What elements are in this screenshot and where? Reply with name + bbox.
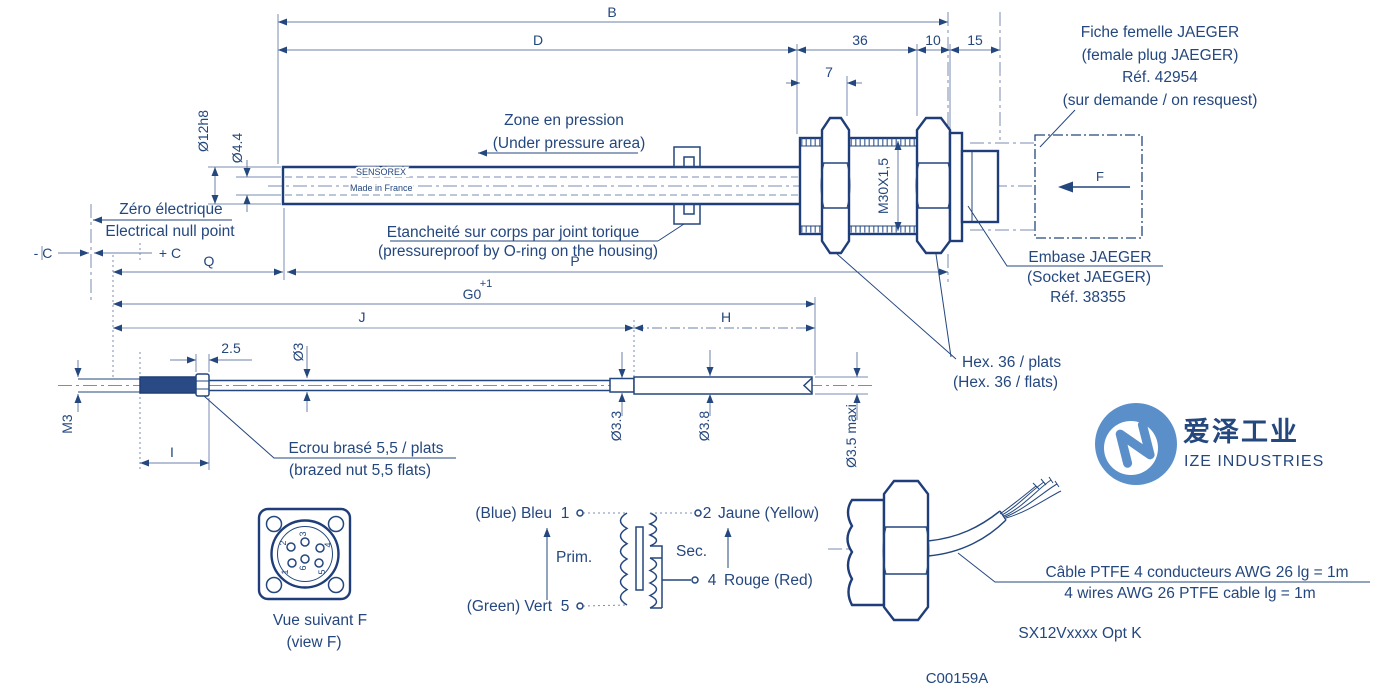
wiring-pin1: 1 — [561, 505, 570, 522]
note-hex-fr: Hex. 36 / plats — [962, 354, 1061, 371]
sensor-drawing: 2 3 4 1 6 5 — [0, 0, 1379, 689]
wiring-pin2: 2 — [703, 505, 712, 522]
socket-stub — [962, 151, 998, 222]
wiring-red-label: Rouge (Red) — [724, 572, 813, 589]
dim-10: 10 — [925, 32, 941, 48]
rod-step-3-3 — [610, 379, 634, 393]
terminal-4 — [692, 577, 698, 583]
wiring-pin4: 4 — [708, 572, 717, 589]
note-socket-line3: Réf. 38355 — [1050, 289, 1126, 306]
note-hex-en: (Hex. 36 / flats) — [953, 374, 1058, 391]
made-in-text: Made in France — [350, 183, 413, 193]
dim-j: J — [359, 309, 366, 325]
note-zero-en: Electrical null point — [105, 223, 235, 240]
primary-coil — [621, 513, 628, 605]
hex-nut-1 — [821, 118, 850, 253]
dim-dia4-4: Ø4.4 — [229, 133, 245, 164]
ize-industries-logo: 爱泽工业 IZE INDUSTRIES — [1095, 403, 1324, 485]
pin-4-label: 4 — [323, 542, 333, 547]
cable-note-fr: Câble PTFE 4 conducteurs AWG 26 lg = 1m — [1045, 564, 1348, 581]
dim-h: H — [721, 309, 731, 325]
dim-b: B — [607, 4, 616, 20]
note-zero-fr: Zéro électrique — [119, 201, 222, 218]
dim-dia3: Ø3 — [290, 342, 306, 361]
terminal-1 — [577, 510, 583, 516]
pin-6-label: 6 — [298, 565, 308, 570]
dim-dia3-3: Ø3.3 — [608, 411, 624, 442]
dim-36: 36 — [852, 32, 868, 48]
brazed-nut — [196, 374, 209, 396]
note-socket-line1: Embase JAEGER — [1028, 249, 1151, 266]
connector-face-view: 2 3 4 1 6 5 — [259, 509, 350, 599]
logo-en-text: IZE INDUSTRIES — [1184, 453, 1324, 470]
pin-1-label: 1 — [280, 569, 290, 574]
dim-minus-c: - C — [34, 245, 53, 261]
pin-3-label: 3 — [298, 531, 308, 536]
dim-2-5: 2.5 — [221, 340, 241, 356]
dim-15: 15 — [967, 32, 983, 48]
drawing-number: C00159A — [926, 670, 989, 687]
dim-g0: G0 — [463, 286, 482, 302]
cable-wires — [1000, 477, 1061, 518]
technical-drawing-page: 2 3 4 1 6 5 — [0, 0, 1379, 689]
hex-nut-2 — [916, 118, 951, 253]
pin-2-label: 2 — [278, 540, 288, 545]
dim-dia12h8: Ø12h8 — [195, 110, 211, 152]
terminal-2 — [695, 510, 701, 516]
note-zone-en: (Under pressure area) — [493, 135, 645, 152]
pin-5-label: 5 — [317, 569, 327, 574]
note-plug-line3: Réf. 42954 — [1122, 69, 1198, 86]
dim-dia3-5-maxi: Ø3.5 maxi — [843, 404, 859, 468]
note-seal-fr: Etancheité sur corps par joint torique — [387, 224, 639, 241]
cable — [928, 511, 1006, 556]
rod-step-3-8 — [634, 377, 812, 394]
threaded-section — [140, 377, 196, 393]
model-reference: SX12Vxxxx Opt K — [1018, 625, 1142, 642]
transformer-core — [636, 527, 643, 590]
connector-caption-en: (view F) — [286, 634, 341, 651]
note-plug-line4: (sur demande / on resquest) — [1063, 92, 1258, 109]
note-socket-line2: (Socket JAEGER) — [1027, 269, 1151, 286]
terminal-5 — [577, 603, 583, 609]
dim-dia3-8: Ø3.8 — [696, 411, 712, 442]
logo-cn-text: 爱泽工业 — [1183, 417, 1299, 447]
dim-d: D — [533, 32, 543, 48]
note-plug-line2: (female plug JAEGER) — [1082, 47, 1239, 64]
cable-note-en: 4 wires AWG 26 PTFE cable lg = 1m — [1064, 585, 1315, 602]
dim-m3: M3 — [59, 414, 75, 434]
cable-option-view — [848, 477, 1062, 620]
connector-caption-fr: Vue suivant F — [273, 612, 367, 629]
body-break-section — [848, 500, 885, 605]
brand-text: SENSOREX — [356, 167, 406, 177]
dim-m30x15: M30X1,5 — [875, 158, 891, 214]
wiring-yellow-label: Jaune (Yellow) — [718, 505, 819, 522]
dim-plus-c: + C — [159, 245, 181, 261]
dim-i: I — [170, 444, 174, 460]
note-plug-line1: Fiche femelle JAEGER — [1081, 24, 1240, 41]
note-seal-en: (pressureproof by O-ring on the housing) — [378, 243, 658, 260]
note-zone-fr: Zone en pression — [504, 112, 624, 129]
wiring-green-label: (Green) Vert — [467, 598, 553, 615]
note-nut-fr: Ecrou brasé 5,5 / plats — [288, 440, 443, 457]
secondary-coil-upper — [650, 513, 657, 546]
washer-plate — [950, 133, 962, 241]
wiring-prim-label: Prim. — [556, 549, 592, 566]
dim-q: Q — [204, 253, 215, 269]
wiring-sec-label: Sec. — [676, 543, 707, 560]
secondary-coil-lower — [650, 558, 657, 608]
dim-plus1: +1 — [480, 278, 493, 290]
dim-f: F — [1096, 169, 1104, 184]
wiring-pin5: 5 — [561, 598, 570, 615]
cable-hex-nut — [883, 481, 929, 620]
wiring-blue-label: (Blue) Bleu — [475, 505, 552, 522]
dim-7: 7 — [825, 64, 833, 80]
note-nut-en: (brazed nut 5,5 flats) — [289, 462, 431, 479]
